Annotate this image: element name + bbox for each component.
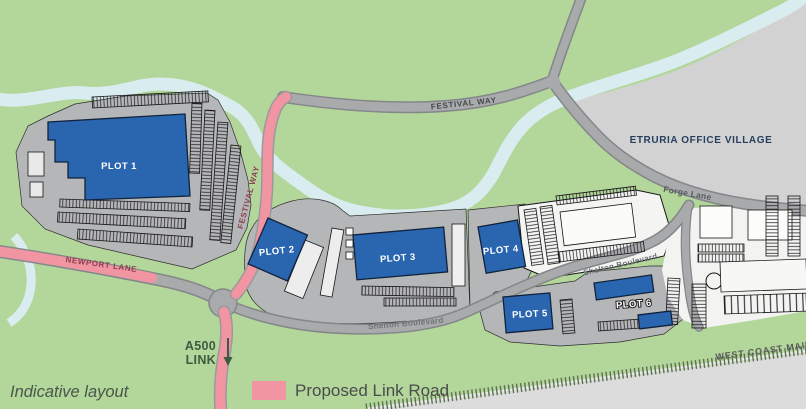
indicative-layout-note: Indicative layout — [10, 383, 130, 401]
plot-5-label: PLOT 5 — [512, 308, 548, 321]
legend: Proposed Link Road — [252, 381, 449, 400]
svg-text:LINK: LINK — [186, 353, 216, 367]
road-fork — [546, 75, 560, 89]
etruria-office-village-label: ETRURIA OFFICE VILLAGE — [630, 135, 773, 146]
legend-label: Proposed Link Road — [295, 381, 449, 400]
svg-text:A500: A500 — [185, 339, 216, 353]
site-plan: PLOT 1 PLOT 2 PLOT 3 PLOT 4 PLOT 5 PLOT … — [0, 0, 806, 409]
plot-1-label: PLOT 1 — [101, 161, 137, 172]
legend-swatch — [252, 381, 286, 400]
